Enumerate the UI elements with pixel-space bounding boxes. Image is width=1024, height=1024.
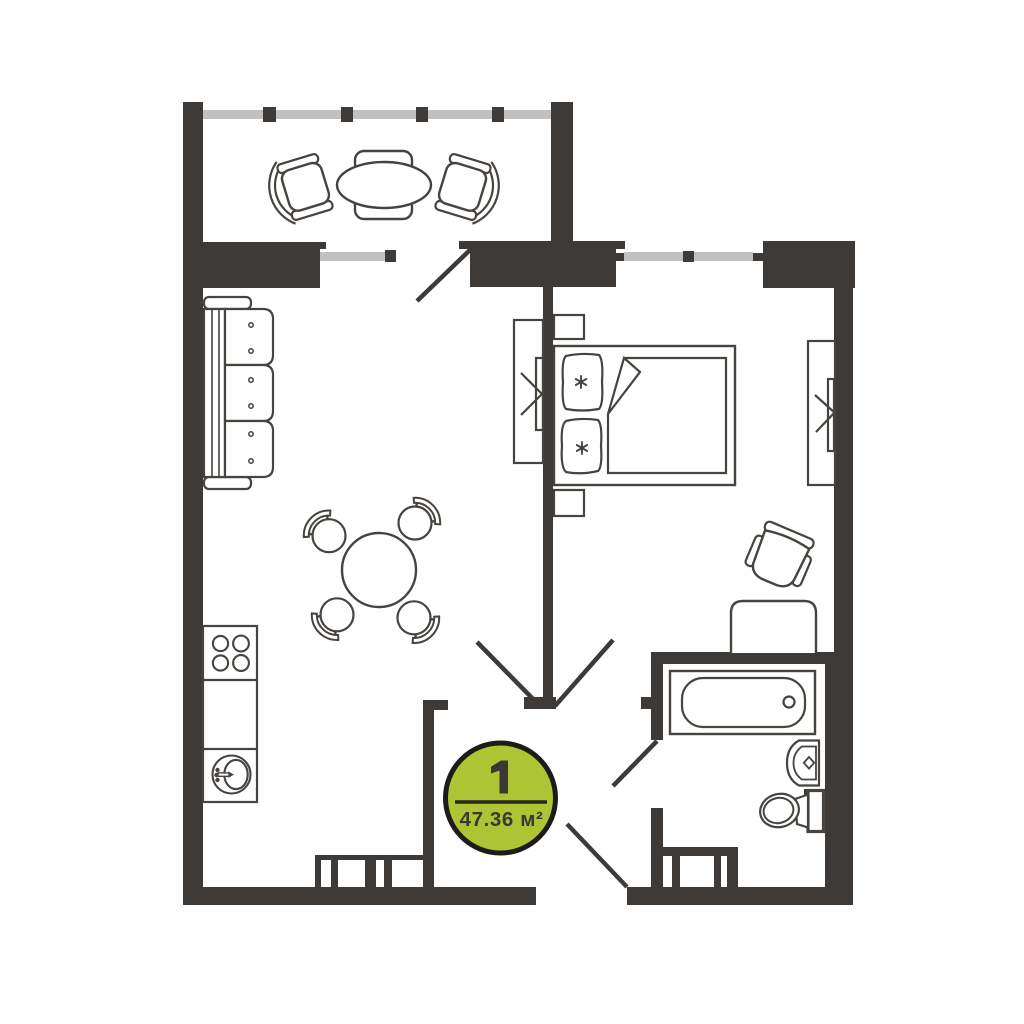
svg-text:47.36 м²: 47.36 м²	[460, 808, 544, 831]
